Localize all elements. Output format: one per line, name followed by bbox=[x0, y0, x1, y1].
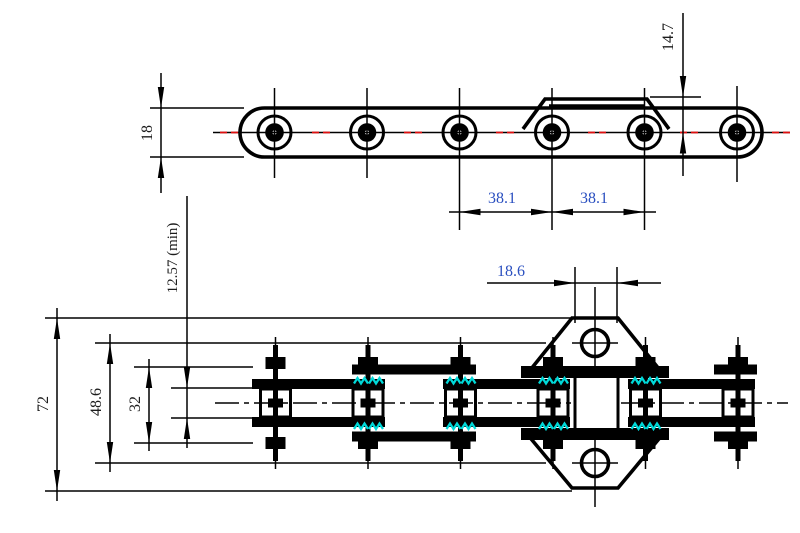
dim-overall-span-label: 72 bbox=[35, 396, 52, 412]
dim-inner-width-label: 12.57 (min) bbox=[165, 223, 181, 294]
dim-pitch-left-label: 38.1 bbox=[488, 190, 516, 207]
dim-pin-length-label: 48.6 bbox=[88, 388, 105, 416]
dim-attachment-height-label: 14.7 bbox=[660, 23, 677, 51]
dim-outer-plate-span: 32 bbox=[127, 359, 152, 451]
dim-pin-length: 48.6 bbox=[88, 334, 113, 472]
attachment-hole-bottom bbox=[572, 435, 618, 507]
chain-engineering-drawing: 18 14.7 38.1 38.1 bbox=[0, 0, 800, 533]
dim-attachment-top-width-label: 18.6 bbox=[497, 263, 525, 280]
dim-plate-height-label: 18 bbox=[139, 125, 156, 141]
side-elevation-view: 18 14.7 38.1 38.1 bbox=[139, 13, 790, 230]
dim-outer-plate-span-label: 32 bbox=[127, 396, 144, 412]
plan-extension-lines bbox=[45, 318, 572, 491]
dim-inner-width: 12.57 (min) bbox=[165, 196, 190, 448]
dim-pitch-right-label: 38.1 bbox=[580, 190, 608, 207]
plan-view: 72 48.6 32 12.57 (min) bbox=[35, 196, 788, 507]
drawing-svg: 18 14.7 38.1 38.1 bbox=[0, 0, 800, 533]
dim-attachment-top-width: 18.6 bbox=[487, 263, 661, 323]
dim-overall-span: 72 bbox=[35, 308, 60, 501]
attachment-hole-top bbox=[572, 287, 618, 371]
attachment-strap bbox=[573, 374, 620, 434]
